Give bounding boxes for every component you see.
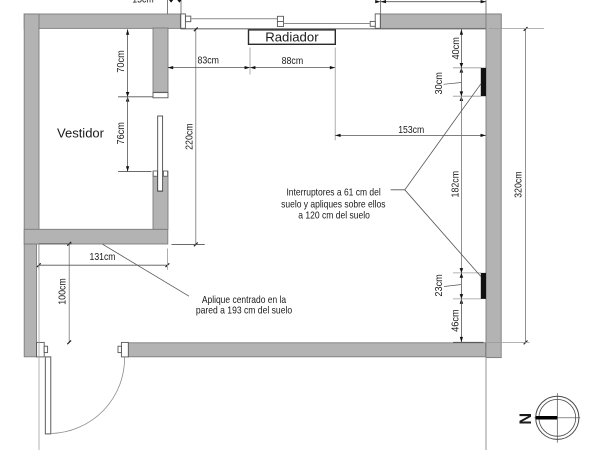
svg-text:70cm: 70cm bbox=[116, 50, 127, 73]
svg-text:83cm: 83cm bbox=[197, 56, 219, 67]
svg-text:320cm: 320cm bbox=[514, 171, 525, 198]
svg-text:220cm: 220cm bbox=[185, 123, 196, 150]
svg-text:15cm: 15cm bbox=[132, 0, 154, 5]
svg-text:30cm: 30cm bbox=[434, 72, 445, 95]
svg-text:Vestidor: Vestidor bbox=[57, 126, 105, 141]
svg-text:182cm: 182cm bbox=[450, 171, 461, 198]
svg-text:23cm: 23cm bbox=[434, 274, 445, 297]
svg-text:153cm: 153cm bbox=[398, 125, 424, 136]
svg-text:N: N bbox=[517, 413, 535, 425]
svg-text:a 120 cm del suelo: a 120 cm del suelo bbox=[298, 210, 370, 221]
svg-text:pared a 193 cm del suelo: pared a 193 cm del suelo bbox=[196, 306, 293, 317]
svg-text:46cm: 46cm bbox=[451, 309, 462, 332]
svg-text:40cm: 40cm bbox=[451, 37, 462, 60]
svg-text:88cm: 88cm bbox=[282, 56, 304, 67]
svg-text:76cm: 76cm bbox=[116, 122, 127, 145]
svg-text:Radiador: Radiador bbox=[265, 29, 319, 44]
svg-text:100cm: 100cm bbox=[57, 278, 68, 305]
svg-text:suelo y apliques sobre ellos: suelo y apliques sobre ellos bbox=[281, 199, 385, 210]
svg-text:131cm: 131cm bbox=[90, 252, 116, 263]
svg-text:Interruptores a 61 cm del: Interruptores a 61 cm del bbox=[286, 188, 380, 199]
